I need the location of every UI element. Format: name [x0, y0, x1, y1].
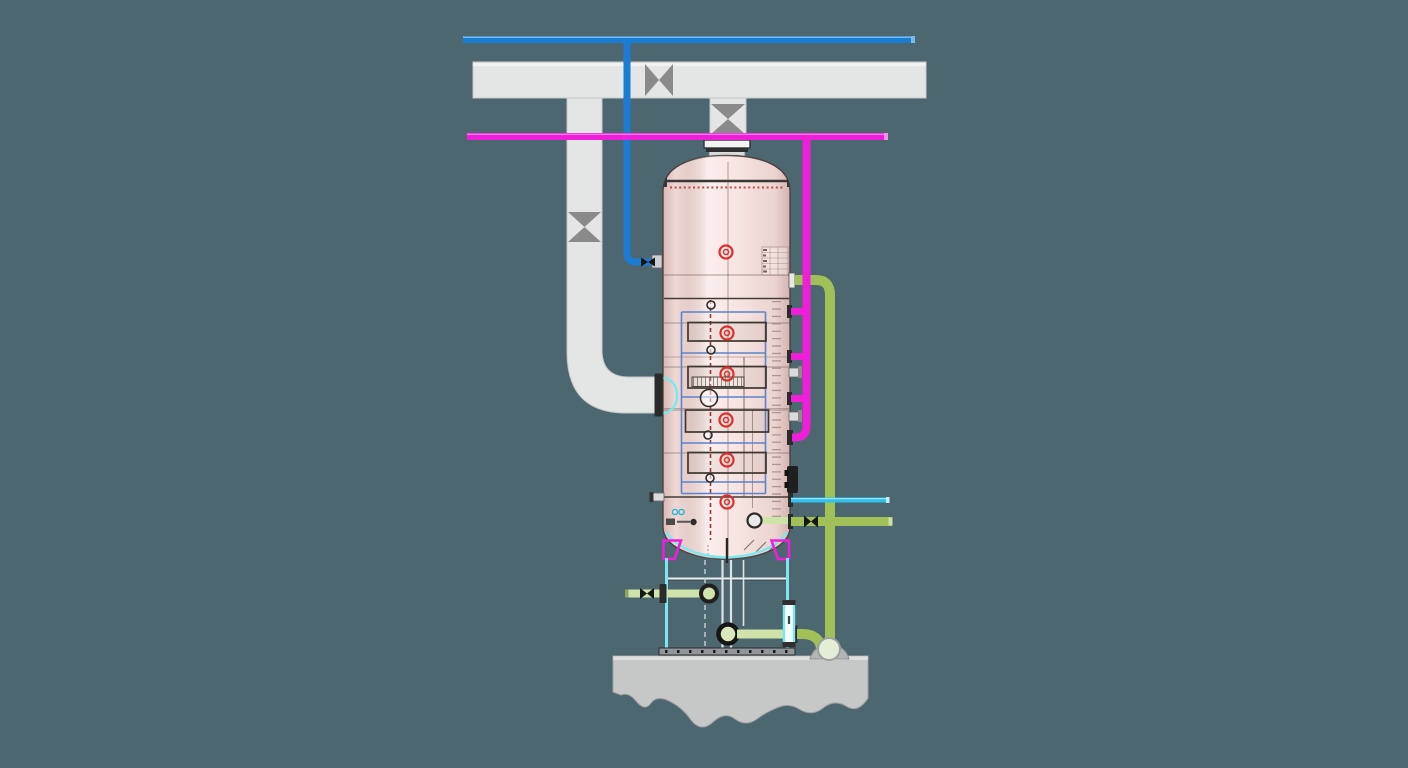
piping-illustration: [0, 0, 1408, 768]
drain-flange: [660, 584, 667, 603]
level-gauge[interactable]: [783, 600, 796, 647]
drain-port[interactable]: [701, 586, 717, 602]
duct-header[interactable]: [473, 62, 926, 98]
plant-3d-view: [0, 0, 1408, 768]
green-nozzle-flange: [789, 273, 795, 288]
magenta-end-cap: [884, 133, 888, 140]
pump-suction-port[interactable]: [719, 625, 738, 644]
skirt-base-ring: [659, 648, 795, 655]
pump[interactable]: [818, 638, 840, 660]
duct-outlet-flange: [655, 374, 663, 417]
duct-header-highlight: [473, 63, 926, 66]
nameplate-grid: [762, 247, 788, 275]
cyan-end-cap: [886, 497, 890, 503]
green-end-cap: [889, 518, 893, 526]
top-nozzle-flange: [704, 140, 750, 148]
drain-end-cap: [625, 590, 629, 598]
scrubber-column[interactable]: [650, 140, 803, 563]
takeoff-port: [748, 514, 762, 528]
blue-end-cap: [911, 36, 915, 43]
top-nozzle-plate: [706, 148, 748, 152]
tray-1: [688, 323, 766, 342]
